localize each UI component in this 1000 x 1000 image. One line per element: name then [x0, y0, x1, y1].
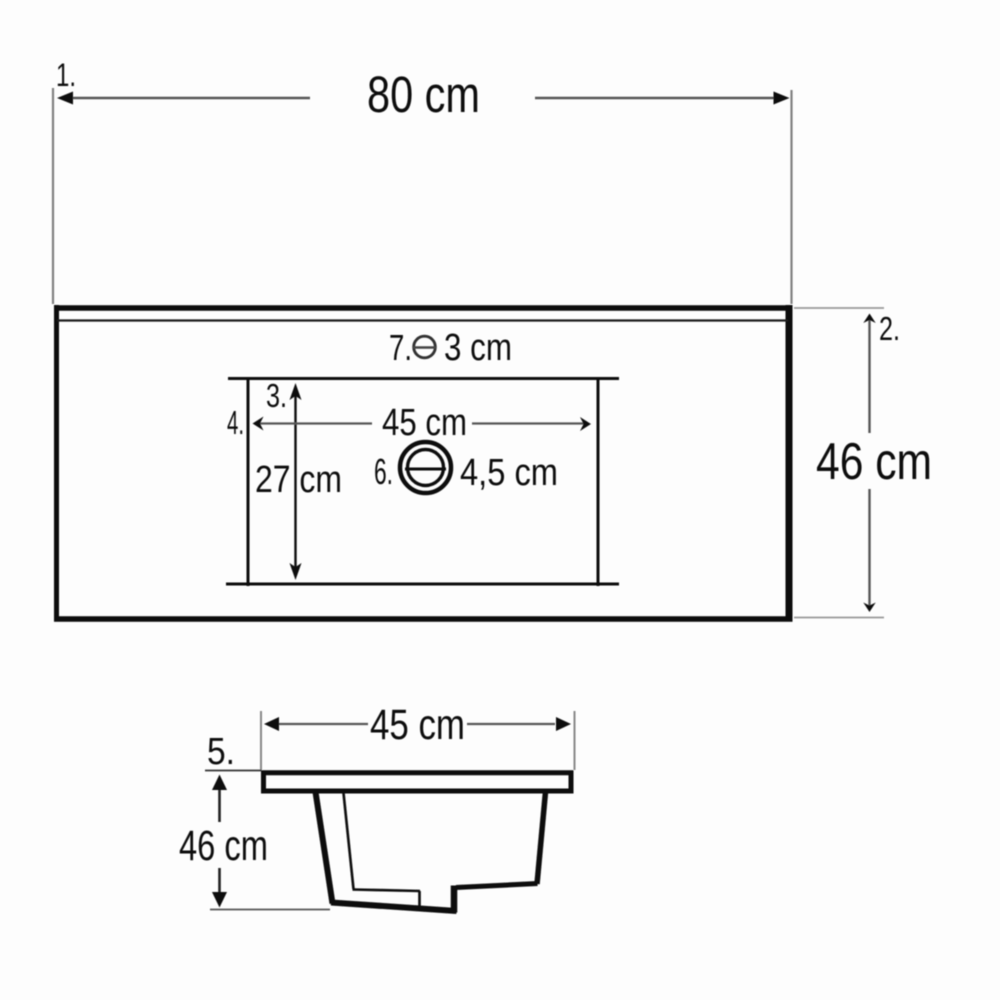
svg-text:4,5 cm: 4,5 cm — [460, 452, 558, 494]
svg-text:1.: 1. — [56, 57, 76, 93]
svg-text:6.: 6. — [374, 451, 393, 492]
svg-text:45 cm: 45 cm — [370, 701, 465, 749]
svg-text:46 cm: 46 cm — [816, 433, 932, 491]
svg-text:80 cm: 80 cm — [367, 66, 480, 123]
svg-text:5.: 5. — [207, 731, 235, 773]
svg-text:46 cm: 46 cm — [179, 822, 268, 870]
svg-text:3 cm: 3 cm — [444, 327, 512, 369]
svg-text:4.: 4. — [227, 404, 244, 441]
svg-text:7.: 7. — [389, 327, 412, 368]
svg-text:45 cm: 45 cm — [382, 402, 467, 444]
svg-text:3.: 3. — [266, 377, 287, 414]
svg-text:2.: 2. — [879, 310, 900, 347]
svg-text:27 cm: 27 cm — [255, 459, 342, 501]
